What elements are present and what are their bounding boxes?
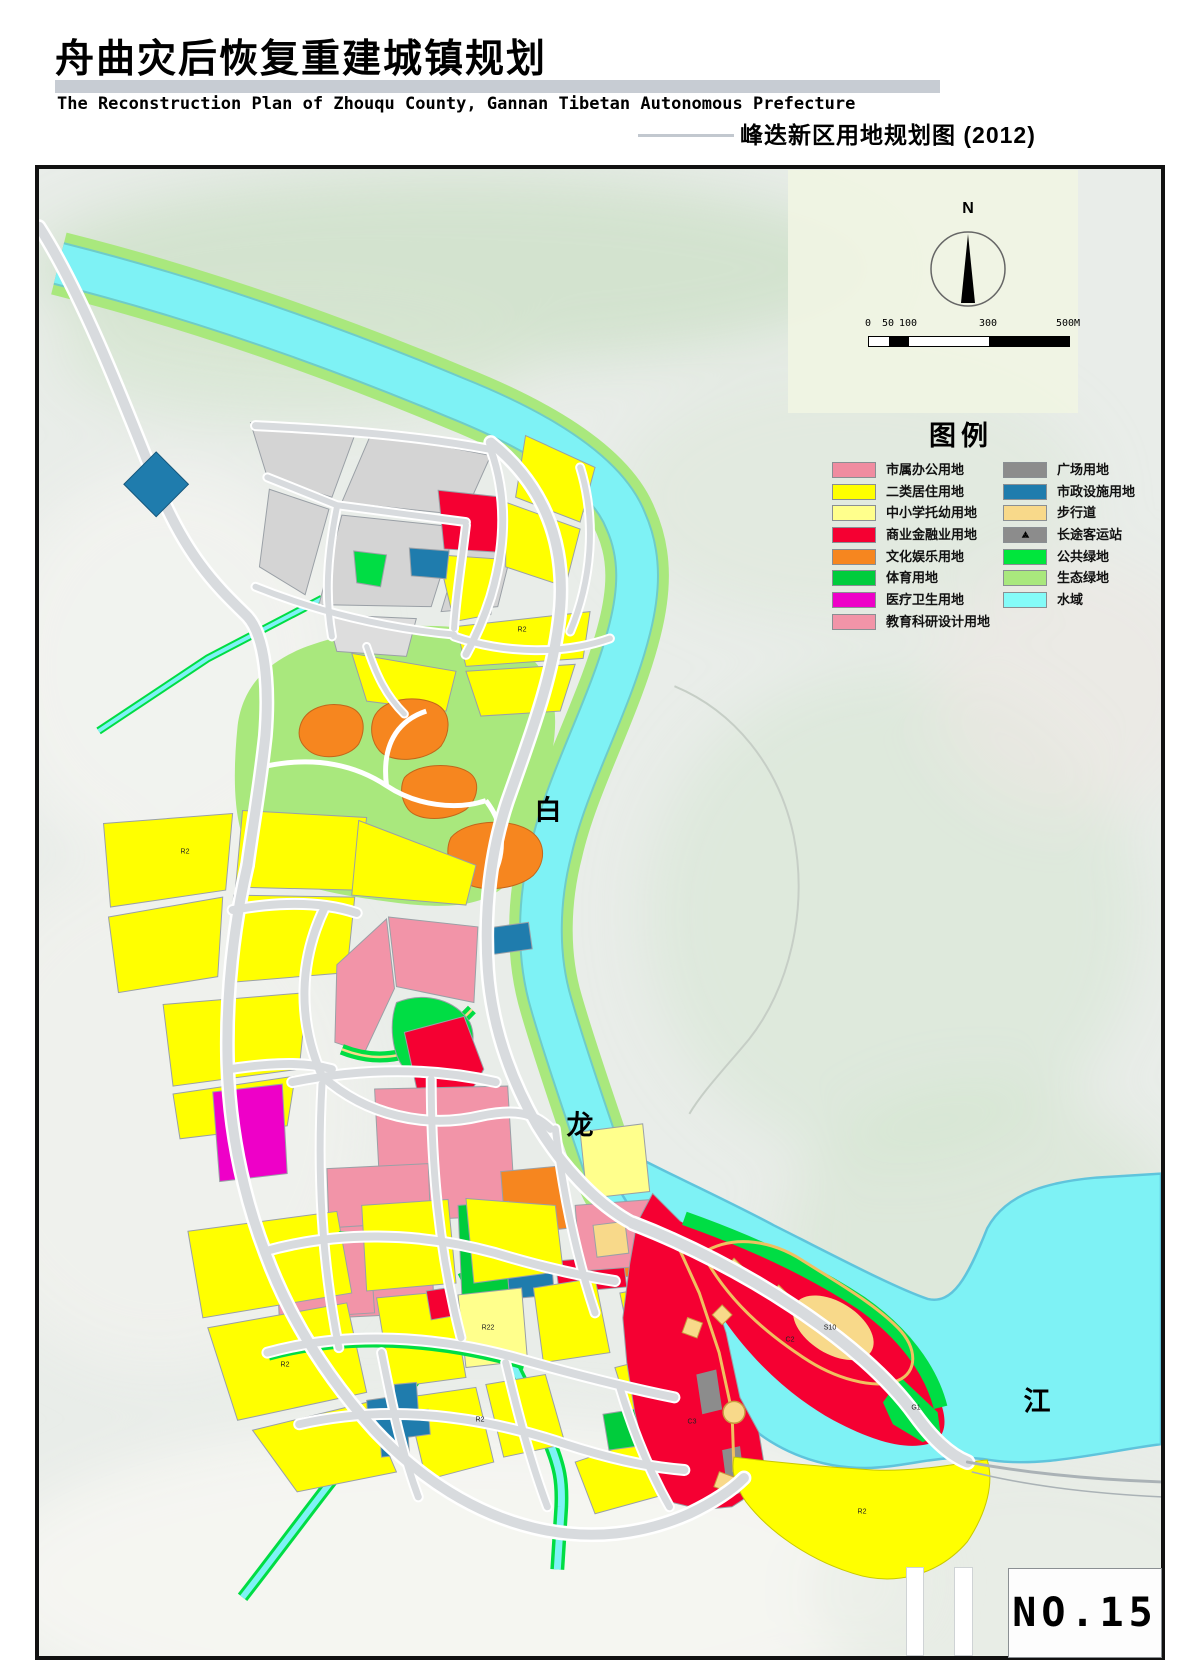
river-label-jiang: 江 [1024, 1380, 1051, 1419]
plan-sheet: 舟曲灾后恢复重建城镇规划 The Reconstruction Plan of … [0, 0, 1200, 1678]
sheet-number: NO.15 [1012, 1590, 1157, 1636]
map-subtitle: 峰迭新区用地规划图 (2012) [740, 116, 1036, 150]
legend-item: 商业金融业用地 [832, 527, 990, 543]
roundabout [723, 1401, 745, 1423]
legend-item: 步行道 [1003, 505, 1135, 521]
legend-swatch [832, 527, 876, 543]
page-title: 舟曲灾后恢复重建城镇规划 [55, 28, 547, 84]
legend-swatch [1003, 484, 1047, 500]
legend-item: 教育科研设计用地 [832, 614, 990, 630]
legend-swatch [832, 570, 876, 586]
legend-item: 广场用地 [1003, 462, 1135, 478]
scale-bar: 0 50 100 300 500M [858, 318, 1083, 352]
legend-item: 二类居住用地 [832, 484, 990, 500]
legend-item: 水域 [1003, 592, 1135, 608]
legend-swatch [1003, 549, 1047, 565]
title-underline-bar [55, 80, 940, 93]
parcel-code: R2 [858, 1509, 867, 1516]
legend-swatch [832, 549, 876, 565]
parcel-code: R2 [181, 849, 190, 856]
subtitle-leader-line [638, 134, 734, 137]
legend-item: 长途客运站 [1003, 527, 1135, 543]
legend-swatch [832, 505, 876, 521]
north-arrow-icon [925, 224, 1011, 316]
parcel-code: R2 [476, 1417, 485, 1424]
legend-swatch [832, 614, 876, 630]
scale-tick: 100 [899, 318, 917, 329]
legend-swatch [1003, 592, 1047, 608]
legend-right-column: 广场用地 市政设施用地 步行道 长途客运站 公共绿地 生态绿地 水域 [1003, 462, 1135, 608]
legend-swatch [832, 462, 876, 478]
parcel-code: C2 [786, 1337, 795, 1344]
legend-title: 图例 [929, 414, 993, 453]
parcel-code: R2 [518, 627, 527, 634]
scale-tick: 300 [979, 318, 997, 329]
legend-swatch [832, 592, 876, 608]
legend-left-column: 市属办公用地 二类居住用地 中小学托幼用地 商业金融业用地 文化娱乐用地 体育用… [832, 462, 990, 630]
north-label: N [962, 200, 974, 218]
page-subtitle-en: The Reconstruction Plan of Zhouqu County… [57, 94, 855, 114]
margin-bar [907, 1568, 923, 1655]
parcel-code: S10 [824, 1325, 836, 1332]
legend-item: 市政设施用地 [1003, 484, 1135, 500]
sheet-number-box: NO.15 [1008, 1568, 1162, 1658]
legend-item: 文化娱乐用地 [832, 549, 990, 565]
legend-item: 体育用地 [832, 570, 990, 586]
bus-station-swatch [1003, 527, 1047, 543]
river-label-long: 龙 [567, 1104, 594, 1143]
legend-swatch [832, 484, 876, 500]
scale-tick: 50 [882, 318, 894, 329]
parcel-code: R22 [482, 1325, 495, 1332]
parcel-code: G1 [911, 1405, 920, 1412]
legend-swatch [1003, 570, 1047, 586]
scale-bar-strip [868, 336, 1070, 347]
legend-item: 市属办公用地 [832, 462, 990, 478]
margin-bar [955, 1568, 972, 1655]
legend-swatch [1003, 505, 1047, 521]
legend-item: 公共绿地 [1003, 549, 1135, 565]
parcel-code: C3 [688, 1419, 697, 1426]
legend-item: 生态绿地 [1003, 570, 1135, 586]
scale-tick: 500M [1056, 318, 1080, 329]
legend-item: 医疗卫生用地 [832, 592, 990, 608]
bus-station-icon [1020, 530, 1031, 541]
legend-swatch [1003, 462, 1047, 478]
river-label-bai: 白 [535, 789, 562, 828]
scale-tick: 0 [865, 318, 871, 329]
legend-item: 中小学托幼用地 [832, 505, 990, 521]
parcel-code: R2 [281, 1362, 290, 1369]
